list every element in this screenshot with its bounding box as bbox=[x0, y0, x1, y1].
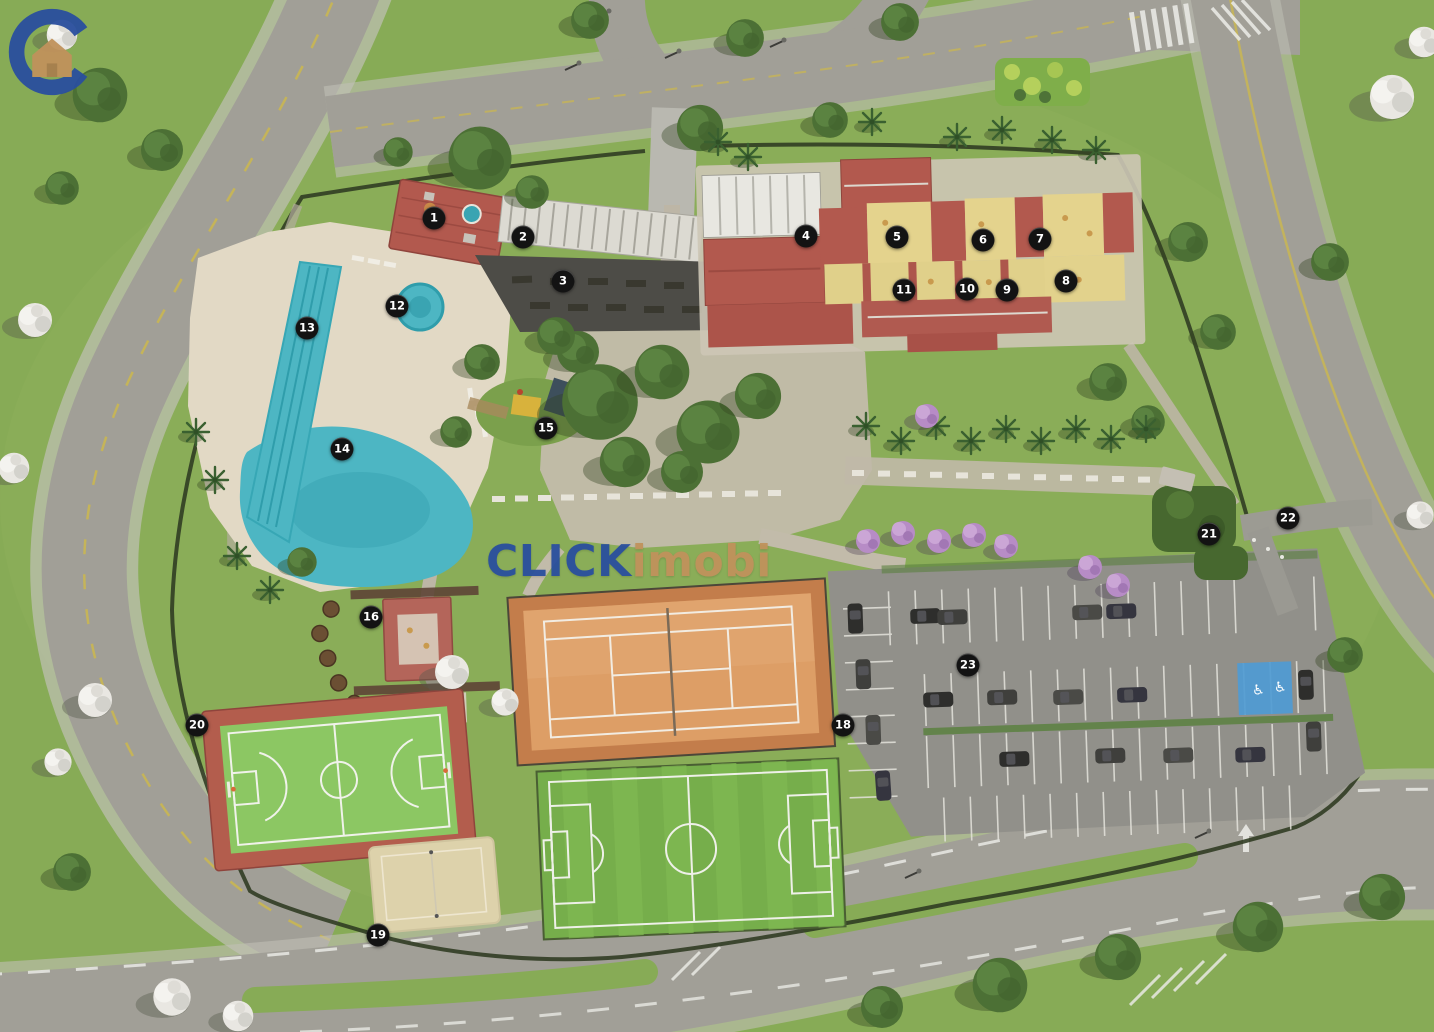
parked-car bbox=[847, 603, 863, 634]
play-structure bbox=[511, 394, 542, 418]
bench bbox=[722, 491, 735, 497]
bench bbox=[653, 493, 666, 499]
bench bbox=[852, 470, 864, 476]
site-plan-scene: ♿ ♿ bbox=[0, 0, 1434, 1032]
parked-car bbox=[1072, 604, 1103, 620]
bench bbox=[878, 471, 890, 477]
parked-car bbox=[987, 689, 1018, 705]
site-plan-render: ♿ ♿ 12345678910111213141516181920212223 … bbox=[0, 0, 1434, 1032]
bench bbox=[699, 492, 712, 498]
sand-court bbox=[368, 837, 500, 934]
parked-car bbox=[875, 770, 892, 801]
garden-bed bbox=[995, 58, 1090, 106]
bench bbox=[930, 472, 942, 478]
bench bbox=[607, 494, 620, 500]
bench bbox=[584, 494, 597, 500]
soccer-field bbox=[537, 758, 846, 939]
kids-pool bbox=[397, 284, 443, 330]
bench bbox=[1060, 475, 1072, 481]
bench bbox=[492, 496, 505, 502]
bench bbox=[768, 490, 781, 496]
main-building bbox=[696, 152, 1146, 358]
parked-car bbox=[923, 692, 954, 708]
parked-car bbox=[855, 659, 871, 690]
parked-car bbox=[1163, 747, 1194, 763]
gym-deck bbox=[475, 255, 735, 332]
bench bbox=[1138, 477, 1150, 483]
parked-car bbox=[1235, 747, 1266, 763]
entrance-driveway bbox=[1242, 512, 1372, 528]
bench bbox=[630, 493, 643, 499]
bench bbox=[1008, 474, 1020, 480]
parked-car bbox=[865, 715, 881, 746]
wheelchair-icon: ♿ bbox=[1274, 679, 1287, 695]
tennis-court bbox=[507, 578, 835, 765]
bench bbox=[1034, 474, 1046, 480]
parked-car bbox=[910, 608, 941, 624]
bench bbox=[982, 473, 994, 479]
parked-car bbox=[999, 751, 1030, 767]
bench bbox=[1112, 476, 1124, 482]
parked-car bbox=[1053, 689, 1084, 705]
bench bbox=[538, 495, 551, 501]
bench bbox=[1086, 475, 1098, 481]
parked-car bbox=[1095, 748, 1126, 764]
parked-car bbox=[1298, 670, 1314, 701]
bench bbox=[745, 491, 758, 497]
parked-car bbox=[1106, 603, 1137, 619]
bench bbox=[956, 472, 968, 478]
bench bbox=[561, 495, 574, 501]
parked-car bbox=[1306, 721, 1322, 752]
parked-car bbox=[1117, 687, 1148, 703]
parked-car bbox=[937, 609, 968, 625]
accessible-parking: ♿ ♿ bbox=[1237, 661, 1293, 715]
wheelchair-icon: ♿ bbox=[1252, 682, 1265, 698]
bench bbox=[515, 496, 528, 502]
bench bbox=[904, 471, 916, 477]
